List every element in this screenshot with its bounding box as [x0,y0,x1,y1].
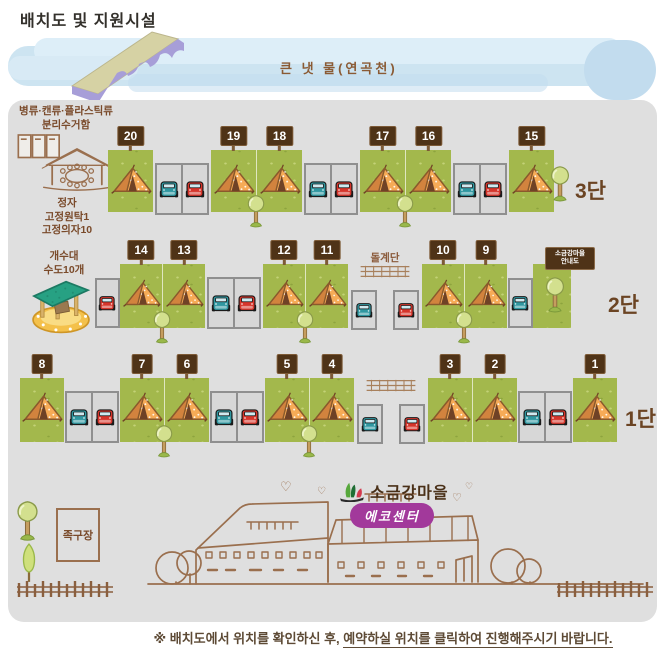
tier-label-3단: 3단 [575,175,606,205]
sink-icon [30,269,92,335]
parking-box [357,404,383,444]
site-number-sign[interactable]: 2 [485,354,506,374]
tent-icon [408,164,450,195]
parking-spot [520,393,544,441]
pavilion-label: 정자 고정원탁1 고정의자10 [20,197,114,238]
parking-spot [510,280,531,326]
heart-icon: ♡ [452,491,462,504]
parking-box [207,277,261,329]
campsite-14[interactable]: 14 [120,264,162,328]
parking-box [393,290,419,330]
site-number-sign[interactable]: 13 [170,240,197,260]
stone-stairs-icon [365,379,417,392]
tent-icon [122,278,161,309]
tree-icon [14,498,41,542]
parking-spot [353,292,375,328]
teal-car-icon [69,406,89,428]
campsite-3[interactable]: 3 [428,378,472,442]
parking-area [517,378,573,442]
parking-area-single [94,264,120,328]
pavilion-icon [38,144,116,198]
fence-right-icon [556,577,656,601]
stairs-gap: 돌계단 [348,264,422,328]
campsite-19[interactable]: 19 [211,150,256,212]
pavilion-line1: 정자 [57,197,76,209]
pavilion-line2: 고정원탁1 [45,211,89,223]
site-number-sign[interactable]: 3 [440,354,461,374]
parking-box [65,391,119,443]
tent-icon [362,164,404,195]
site-number-sign[interactable]: 18 [266,126,293,146]
tree-icon [453,309,475,344]
village-logo-text: 소금강마을 [370,479,449,503]
parking-spot [157,165,181,213]
campsite-5[interactable]: 5 [265,378,309,442]
site-number-sign[interactable]: 6 [177,354,198,374]
village-logo-icon [338,480,366,502]
tree-icon [298,423,320,458]
parking-box [95,278,120,328]
tent-icon [166,392,208,423]
parking-spot [395,292,417,328]
parking-spot [306,165,330,213]
site-number-sign[interactable]: 12 [270,240,297,260]
teal-car-icon [211,292,231,314]
info-sign-line1: 소금강마을 [555,250,585,257]
site-number-sign[interactable]: 14 [127,240,154,260]
tent-icon [121,392,163,423]
red-car-icon [185,178,205,200]
parking-spot [401,406,423,442]
site-number-sign[interactable]: 17 [369,126,396,146]
campsite-10[interactable]: 10 [422,264,464,328]
river-illustration: 큰 냇 물(연곡천) [8,34,658,102]
site-number-sign[interactable]: 9 [476,240,497,260]
site-number-sign[interactable]: 20 [117,126,144,146]
teal-car-icon [214,406,234,428]
tier-label-1단: 1단 [625,403,656,433]
heart-icon: ♡ [317,486,326,497]
parking-area [205,264,263,328]
fence-left-icon [16,577,116,601]
tent-icon [511,164,553,195]
parking-spot [330,165,356,213]
camp-tier-2: 14131211돌계단109소금강마을안내도2단 [94,264,571,328]
teal-car-icon [511,293,529,313]
tent-icon [474,392,516,423]
parking-area [302,150,360,212]
parking-spot [212,393,236,441]
parking-area [209,378,265,442]
red-car-icon [483,178,503,200]
tent-icon [165,278,204,309]
recycle-label: 병류·캔류·플라스틱류 분리수거함 [10,105,122,132]
jokgu-court: 족구장 [56,508,100,562]
parking-spot [97,280,118,326]
parking-box [155,163,209,215]
parking-box [351,290,377,330]
tent-icon [110,164,152,195]
red-car-icon [240,406,260,428]
teal-car-icon [355,300,373,320]
tent-icon [21,392,63,423]
campsite-17[interactable]: 17 [360,150,405,212]
tent-icon [259,164,301,195]
sink-line1: 개수대 [50,250,79,262]
parking-spot [67,393,91,441]
tree-icon [294,309,316,344]
tree-icon [543,274,567,314]
parking-box [304,163,358,215]
parking-area [153,150,211,212]
village-info-sign: 소금강마을안내도 [545,247,595,270]
campsite-20[interactable]: 20 [108,150,153,212]
stairs-gap [354,378,428,442]
footer-prefix: ※ 배치도에서 위치를 확인하신 후, [153,631,343,646]
parking-spot [91,393,117,441]
tent-icon [311,392,353,423]
tree-icon [151,309,173,344]
campsite-1[interactable]: 1 [573,378,617,442]
teal-car-icon [522,406,542,428]
eco-center-badge: 에코센터 [350,503,434,528]
site-number-sign[interactable]: 11 [314,240,341,260]
tree-icon [153,423,175,458]
parking-box [508,278,533,328]
site-number-sign[interactable]: 7 [132,354,153,374]
recycle-line2: 분리수거함 [42,119,90,131]
heart-icon: ♡ [465,481,473,492]
footer-instruction: ※ 배치도에서 위치를 확인하신 후, 예약하실 위치를 클릭하여 진행해주시기… [105,628,661,647]
info-sign-line2: 안내도 [561,258,579,265]
parking-box [453,163,507,215]
red-car-icon [98,293,116,313]
camp-tier-1: 876543211단 [20,378,617,442]
site-number-sign[interactable]: 16 [415,126,442,146]
parking-area [451,150,509,212]
recycle-line1: 병류·캔류·플라스틱류 [19,105,113,117]
parking-area-single [507,264,533,328]
tent-icon [424,278,463,309]
site-number-sign[interactable]: 1 [585,354,606,374]
jokgu-label: 족구장 [63,527,93,543]
tree-icon [548,162,572,204]
site-number-sign[interactable]: 5 [277,354,298,374]
parking-spot [233,279,259,327]
tent-icon [308,278,347,309]
parking-spot [181,165,207,213]
tier-label-2단: 2단 [608,289,639,319]
river-label: 큰 냇 물(연곡천) [280,58,398,77]
campsite-12[interactable]: 12 [263,264,305,328]
parking-spot [479,165,505,213]
pavilion-line3: 고정의자10 [42,224,92,236]
teal-car-icon [308,178,328,200]
red-car-icon [334,178,354,200]
map-panel: 병류·캔류·플라스틱류 분리수거함 정자 고정원탁1 고정의자10 개수대 수도… [8,100,657,622]
bridge-icon [54,26,204,108]
red-car-icon [403,414,421,434]
parking-box [518,391,572,443]
red-car-icon [548,406,568,428]
tent-icon [429,392,471,423]
parking-spot [455,165,479,213]
teal-car-icon [361,414,379,434]
teal-car-icon [159,178,179,200]
tent-icon [213,164,255,195]
camp-tier-3: 2019181716153단 [108,150,554,212]
site-number-sign[interactable]: 19 [220,126,247,146]
layout-page: 배치도 및 지원시설 큰 냇 물(연곡천) 병류·캔류·플라스틱류 분리수거함 … [0,0,665,667]
campsite-8[interactable]: 8 [20,378,64,442]
parking-spot [209,279,233,327]
site-number-sign[interactable]: 10 [429,240,456,260]
village-logo: 소금강마을 [338,479,449,503]
stairs-label: 돌계단 [371,250,400,265]
tent-icon [574,392,616,423]
grass-end [533,264,571,328]
stone-stairs-icon [359,265,411,278]
red-car-icon [397,300,415,320]
site-number-sign[interactable]: 15 [518,126,545,146]
campsite-7[interactable]: 7 [120,378,164,442]
tent-icon [467,278,506,309]
tree-icon [394,193,416,228]
teal-car-icon [457,178,477,200]
parking-spot [544,393,570,441]
tree-icon [245,193,267,228]
parking-box [210,391,264,443]
parking-area [64,378,120,442]
parking-spot [236,393,262,441]
site-number-sign[interactable]: 4 [322,354,343,374]
red-car-icon [237,292,257,314]
site-number-sign[interactable]: 8 [32,354,53,374]
red-car-icon [95,406,115,428]
tent-icon [265,278,304,309]
heart-icon: ♡ [280,479,292,495]
tent-icon [266,392,308,423]
parking-spot [359,406,381,442]
footer-underlined: 예약하실 위치를 클릭하여 진행해주시기 바랍니다. [343,631,612,648]
campsite-2[interactable]: 2 [472,378,517,442]
parking-box [399,404,425,444]
river-water-right [584,40,656,100]
